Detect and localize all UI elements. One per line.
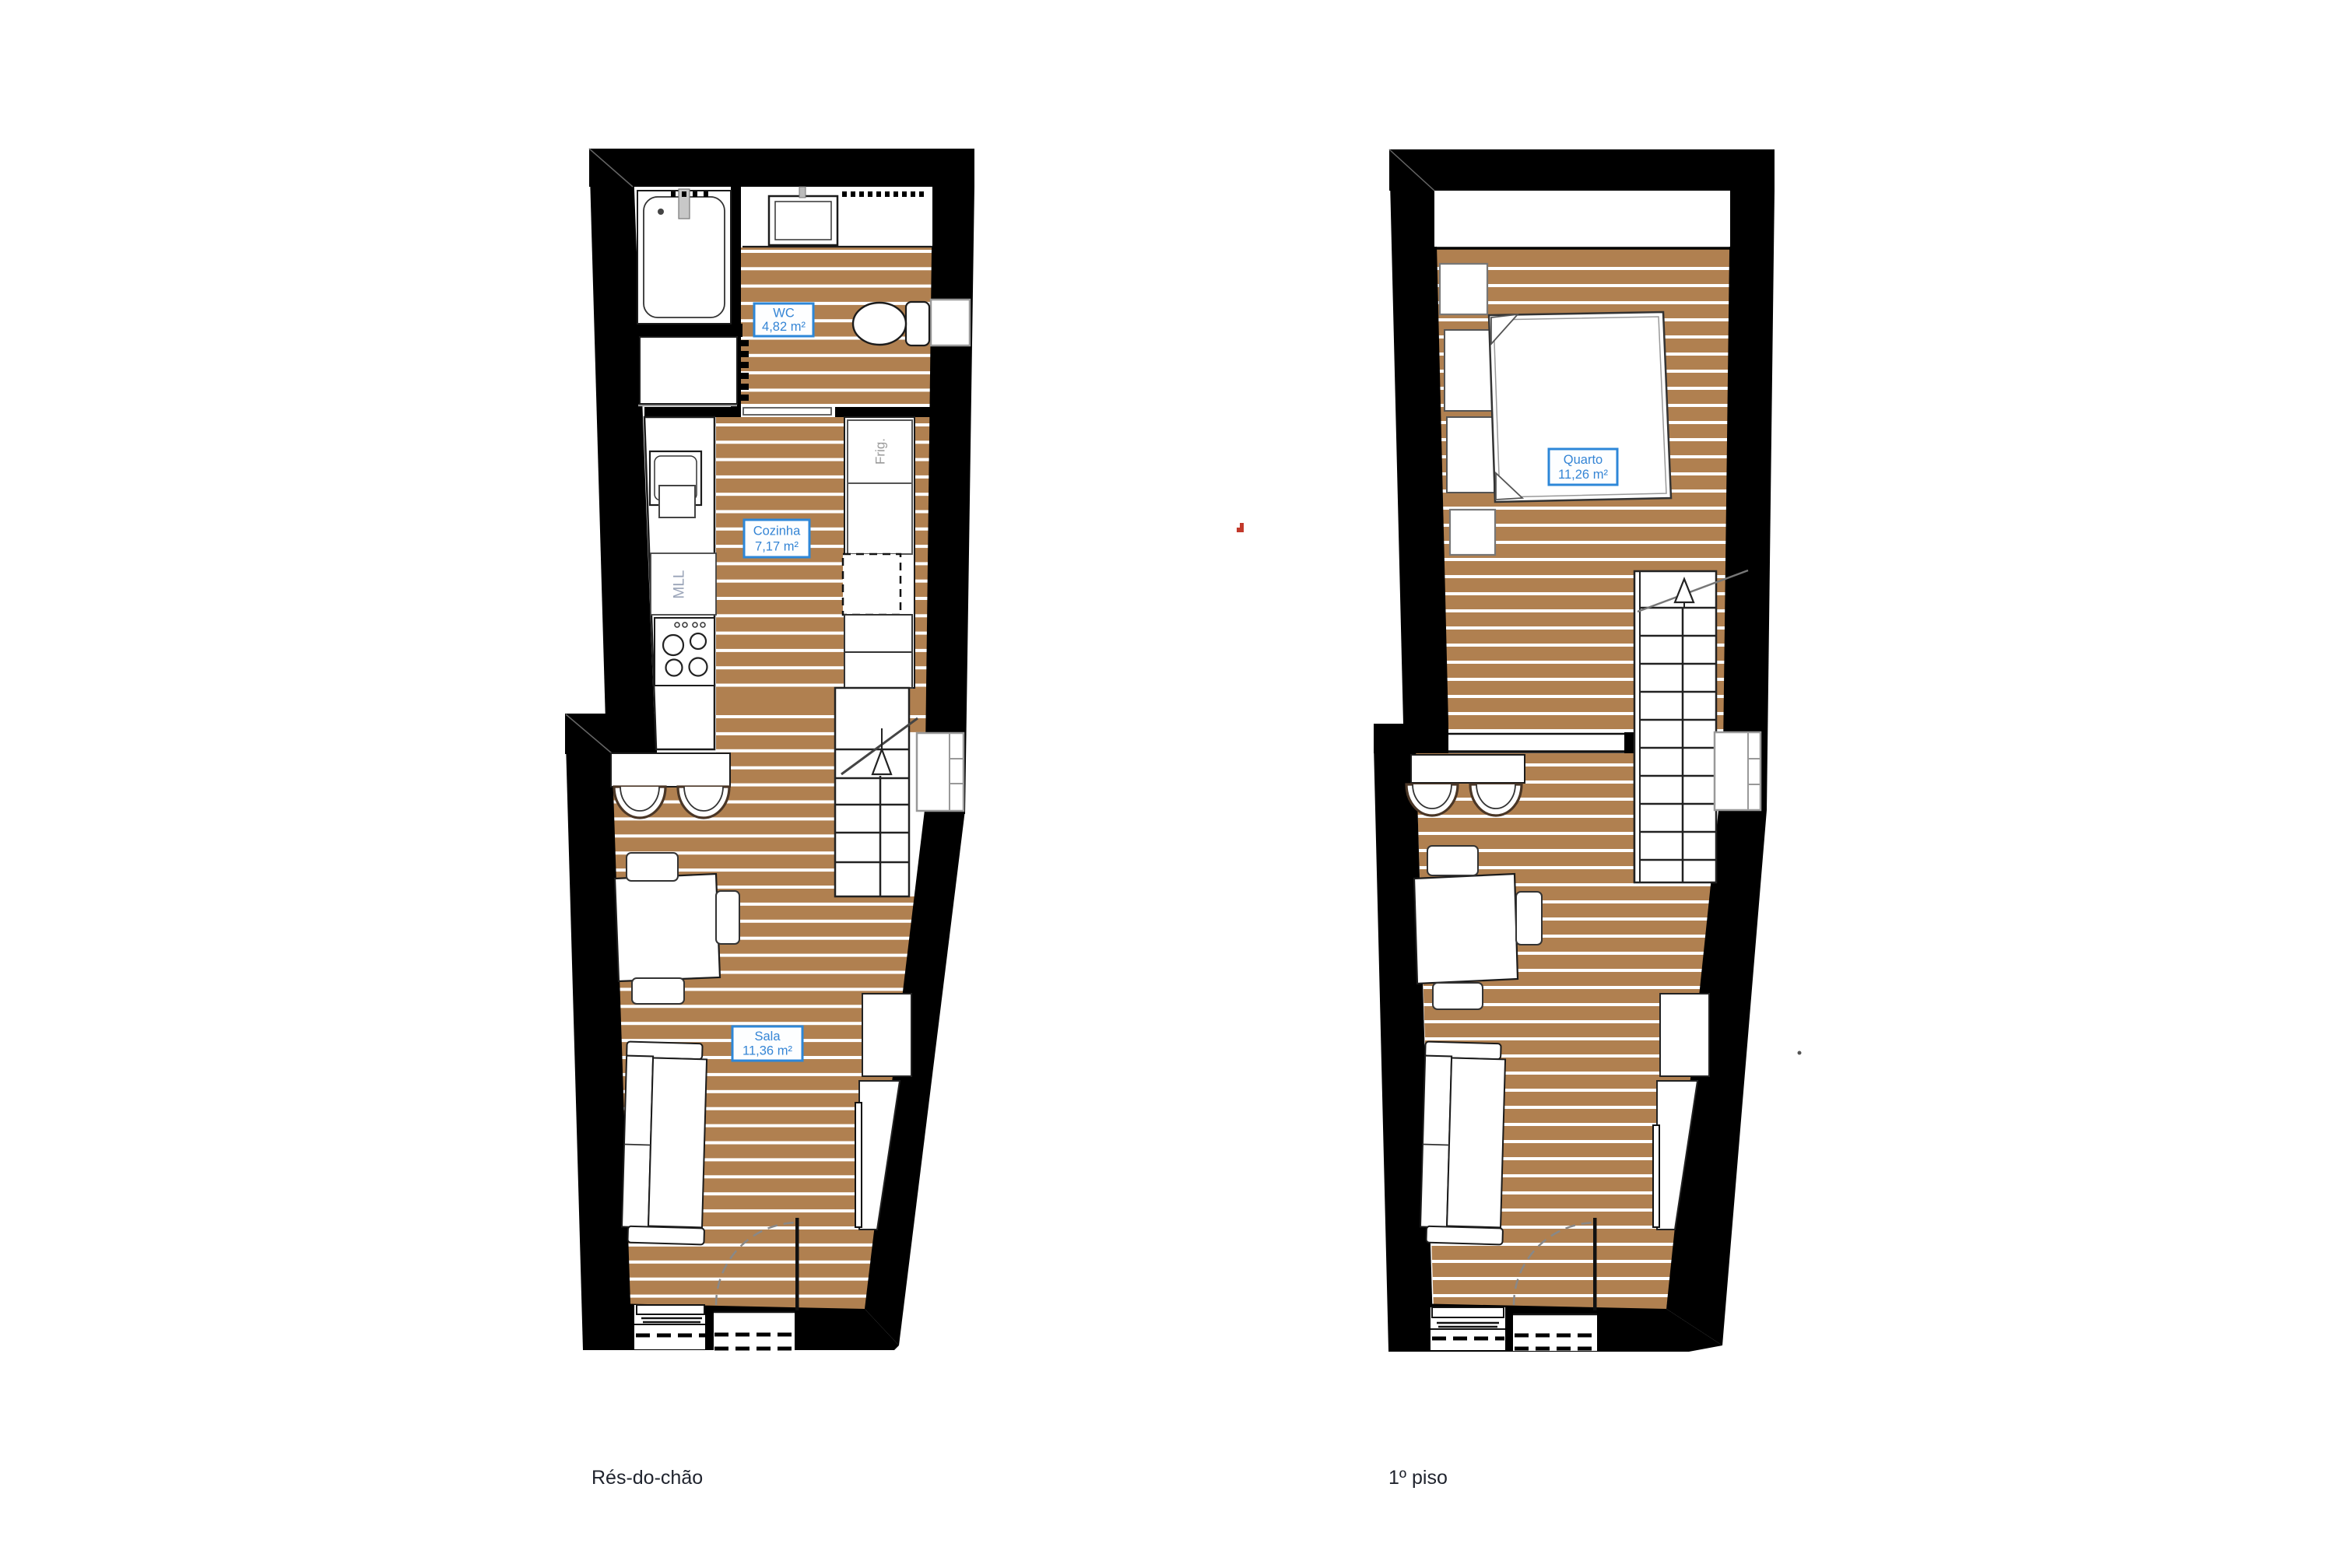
svg-text:Cozinha: Cozinha <box>753 524 801 538</box>
svg-text:7,17 m²: 7,17 m² <box>755 540 799 554</box>
svg-text:MLL: MLL <box>672 570 688 599</box>
svg-text:Frig.: Frig. <box>873 438 888 465</box>
svg-text:Quarto: Quarto <box>1564 453 1603 467</box>
svg-text:Sala: Sala <box>754 1030 781 1044</box>
svg-text:Rés-do-chão: Rés-do-chão <box>592 1467 703 1489</box>
svg-text:11,36 m²: 11,36 m² <box>742 1044 792 1058</box>
svg-text:1º piso: 1º piso <box>1388 1467 1448 1489</box>
svg-text:WC: WC <box>773 307 795 321</box>
svg-text:11,26 m²: 11,26 m² <box>1558 468 1608 482</box>
svg-text:4,82 m²: 4,82 m² <box>762 320 806 334</box>
